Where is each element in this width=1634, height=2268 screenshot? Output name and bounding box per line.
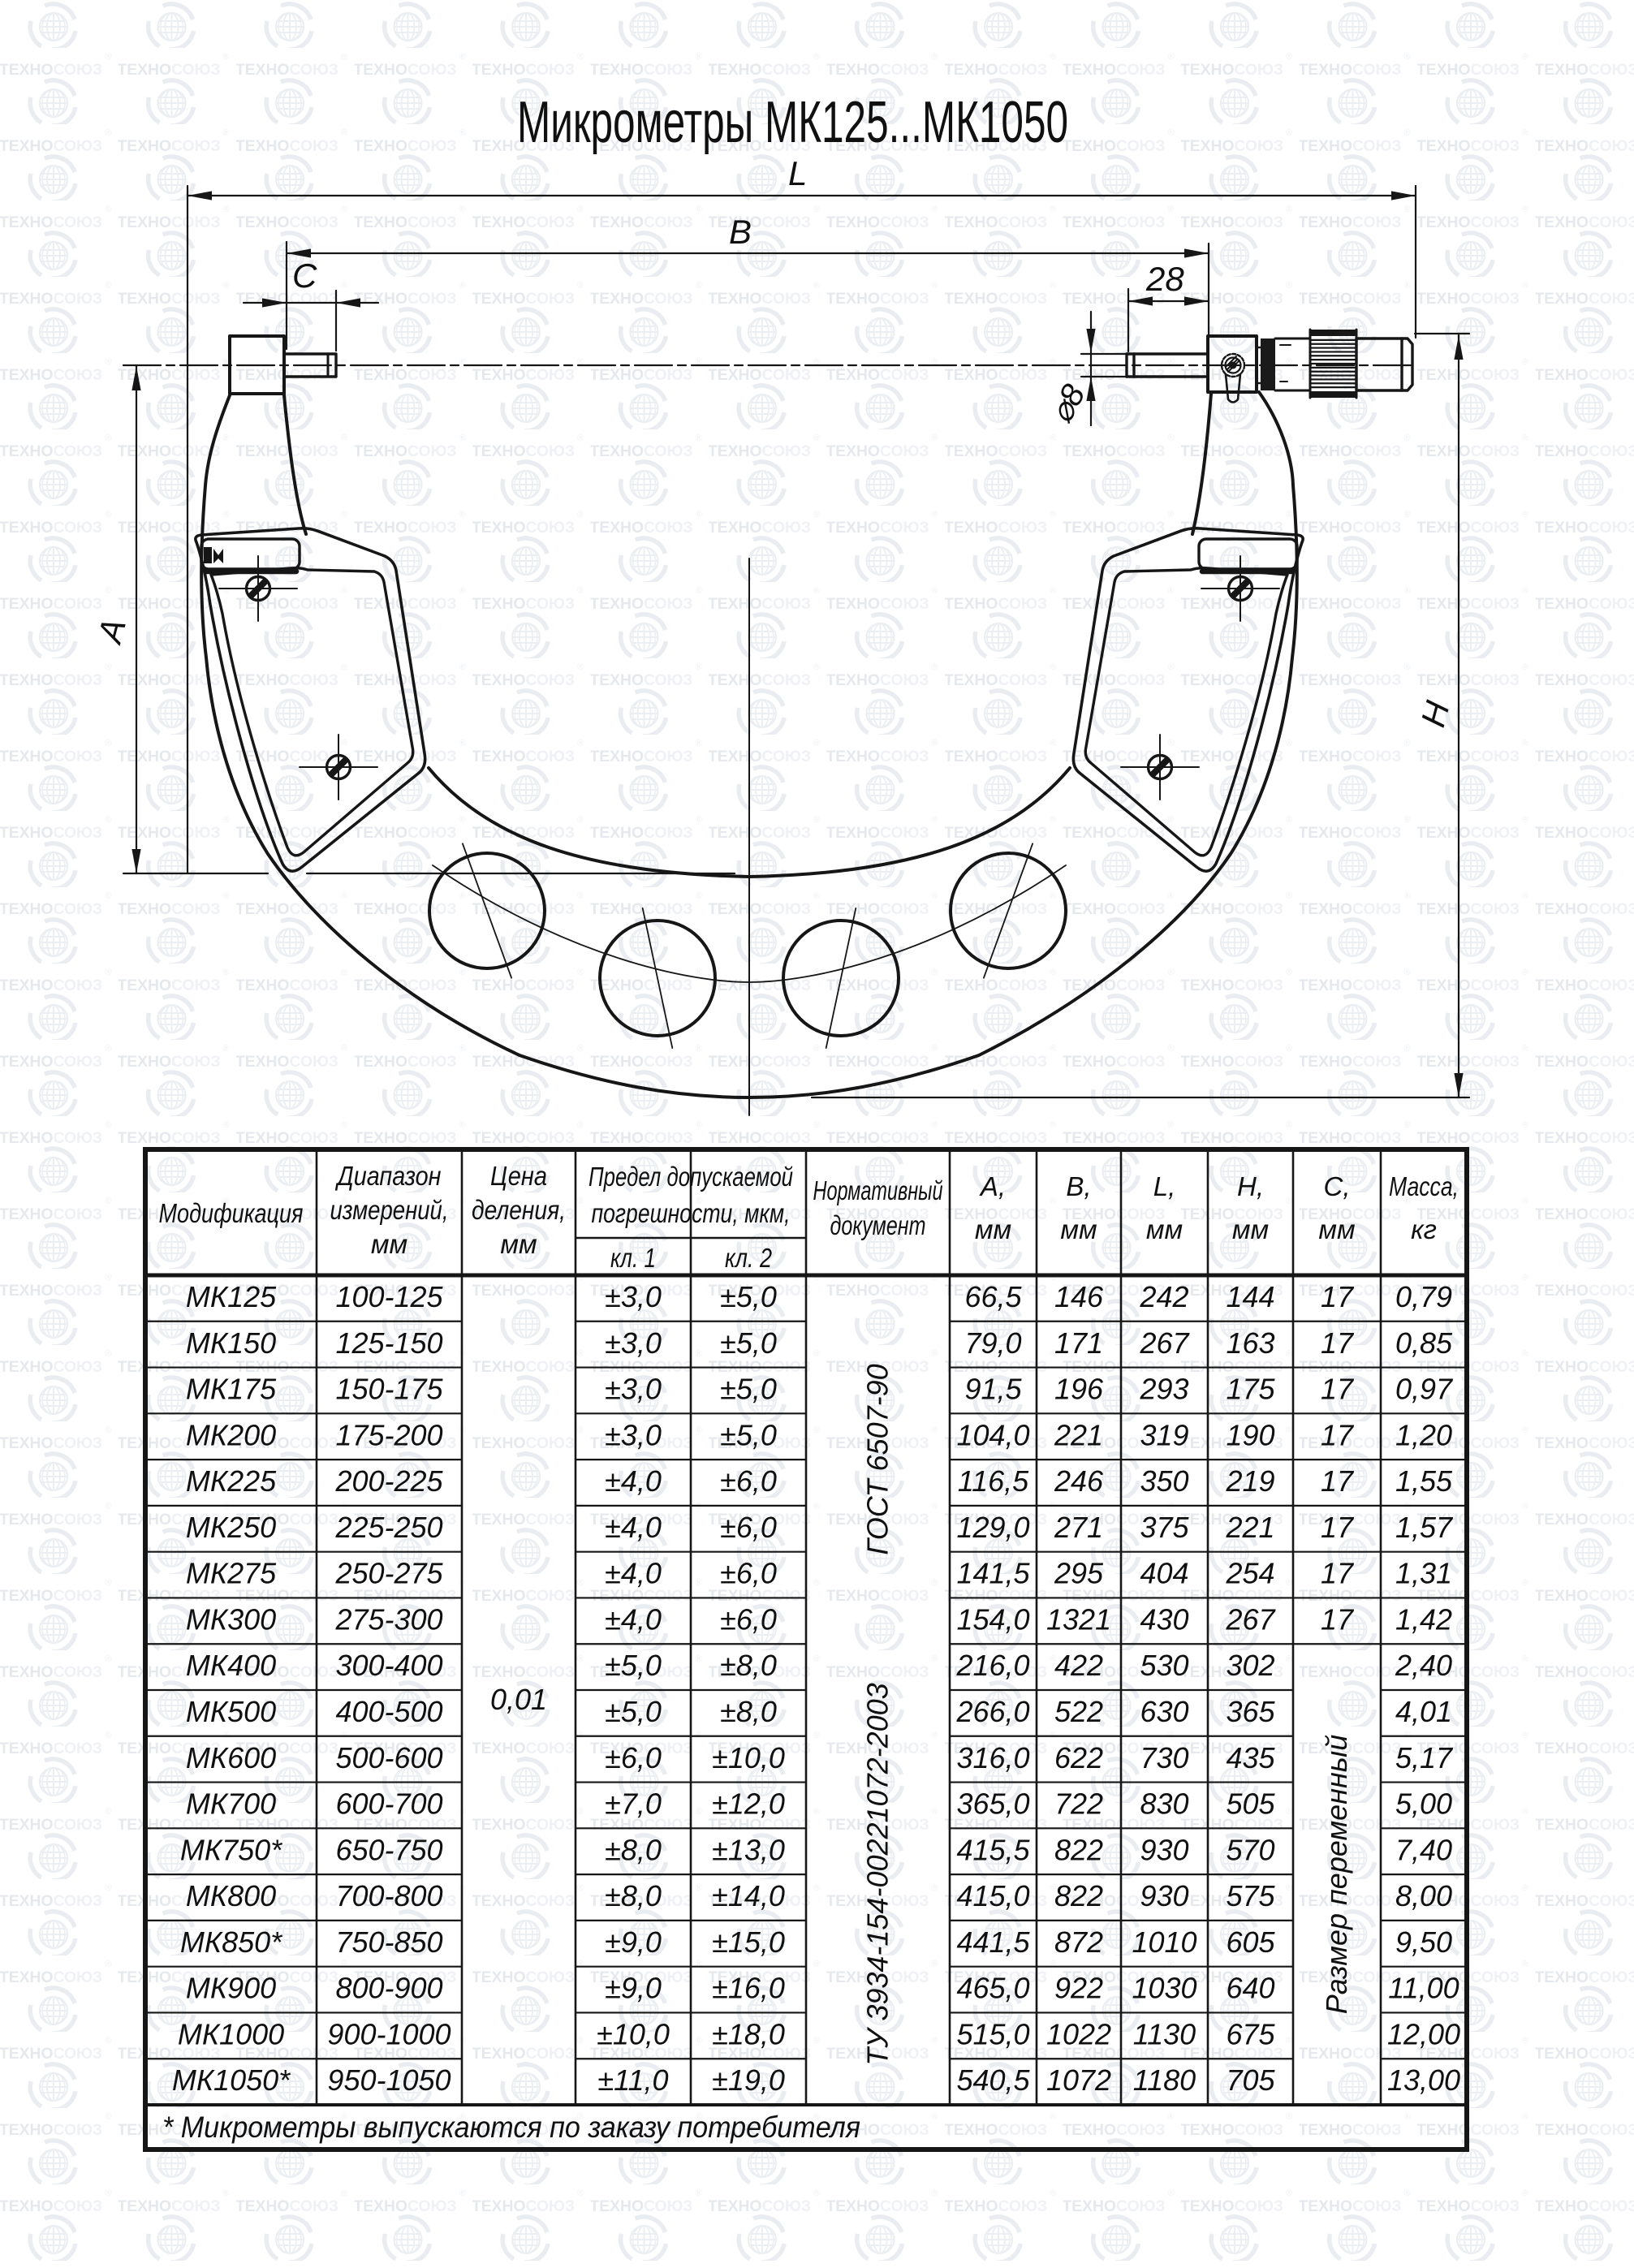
svg-text:830: 830 — [1140, 1787, 1188, 1821]
svg-text:±5,0: ±5,0 — [605, 1695, 662, 1728]
svg-text:±6,0: ±6,0 — [605, 1741, 662, 1774]
svg-text:5,00: 5,00 — [1395, 1787, 1452, 1821]
svg-text:622: 622 — [1054, 1741, 1103, 1774]
svg-text:В,: В, — [1066, 1171, 1091, 1201]
svg-text:505: 505 — [1226, 1787, 1275, 1821]
svg-text:±19,0: ±19,0 — [712, 2063, 785, 2097]
svg-text:МК150: МК150 — [186, 1326, 276, 1360]
svg-text:±8,0: ±8,0 — [605, 1879, 662, 1912]
svg-text:730: 730 — [1140, 1741, 1188, 1774]
svg-text:1321: 1321 — [1046, 1602, 1111, 1636]
svg-text:Предел допускаемой: Предел допускаемой — [588, 1162, 793, 1192]
svg-text:±8,0: ±8,0 — [605, 1833, 662, 1866]
svg-text:125-150: 125-150 — [335, 1326, 442, 1360]
svg-text:1130: 1130 — [1133, 2017, 1196, 2050]
svg-text:Н,: Н, — [1237, 1171, 1264, 1201]
svg-text:МК225: МК225 — [186, 1464, 277, 1498]
svg-text:0,79: 0,79 — [1395, 1280, 1452, 1313]
svg-text:мм: мм — [1318, 1214, 1355, 1244]
svg-text:28: 28 — [1145, 260, 1184, 298]
svg-text:365: 365 — [1226, 1695, 1275, 1728]
svg-text:422: 422 — [1054, 1649, 1103, 1682]
svg-text:7,40: 7,40 — [1395, 1833, 1452, 1866]
svg-text:МК900: МК900 — [186, 1972, 276, 2005]
svg-text:9,50: 9,50 — [1395, 1925, 1452, 1959]
svg-text:175: 175 — [1226, 1373, 1275, 1406]
svg-text:1022: 1022 — [1046, 2017, 1111, 2050]
svg-text:Диапазон: Диапазон — [334, 1161, 441, 1191]
svg-text:мм: мм — [500, 1229, 537, 1259]
svg-text:±15,0: ±15,0 — [712, 1925, 785, 1959]
svg-text:±12,0: ±12,0 — [712, 1787, 785, 1821]
svg-text:1,20: 1,20 — [1395, 1418, 1452, 1451]
svg-text:0,01: 0,01 — [490, 1683, 547, 1716]
svg-text:МК750*: МК750* — [180, 1833, 282, 1866]
svg-text:365,0: 365,0 — [956, 1787, 1029, 1821]
svg-text:±5,0: ±5,0 — [720, 1373, 777, 1406]
svg-text:267: 267 — [1225, 1602, 1276, 1636]
svg-text:±6,0: ±6,0 — [720, 1511, 777, 1544]
svg-text:141,5: 141,5 — [956, 1557, 1030, 1590]
svg-text:±11,0: ±11,0 — [597, 2063, 668, 2097]
svg-text:540,5: 540,5 — [956, 2063, 1030, 2097]
svg-text:79,0: 79,0 — [964, 1326, 1021, 1360]
svg-text:0,85: 0,85 — [1395, 1326, 1453, 1360]
svg-text:МК250: МК250 — [186, 1511, 276, 1544]
svg-text:мм: мм — [1146, 1214, 1183, 1244]
svg-text:±6,0: ±6,0 — [720, 1602, 777, 1636]
svg-text:1,31: 1,31 — [1395, 1557, 1452, 1590]
svg-text:мм: мм — [1060, 1214, 1097, 1244]
svg-text:±4,0: ±4,0 — [605, 1557, 662, 1590]
svg-text:242: 242 — [1139, 1280, 1188, 1313]
svg-text:Масса,: Масса, — [1389, 1171, 1459, 1201]
svg-text:575: 575 — [1226, 1879, 1275, 1912]
svg-text:±8,0: ±8,0 — [720, 1695, 777, 1728]
svg-text:404: 404 — [1140, 1557, 1188, 1590]
svg-text:МК1050*: МК1050* — [172, 2063, 291, 2097]
svg-text:219: 219 — [1225, 1464, 1274, 1498]
svg-text:Микрометры МК125...МК1050: Микрометры МК125...МК1050 — [517, 90, 1068, 155]
svg-text:МК125: МК125 — [186, 1280, 277, 1313]
svg-text:±14,0: ±14,0 — [712, 1879, 785, 1912]
svg-text:МК275: МК275 — [186, 1557, 277, 1590]
svg-text:175-200: 175-200 — [335, 1418, 442, 1451]
svg-text:350: 350 — [1140, 1464, 1188, 1498]
svg-text:415,5: 415,5 — [956, 1833, 1030, 1866]
svg-text:±3,0: ±3,0 — [605, 1326, 662, 1360]
svg-text:441,5: 441,5 — [956, 1925, 1030, 1959]
svg-text:650-750: 650-750 — [335, 1833, 442, 1866]
svg-text:Нормативный: Нормативный — [813, 1175, 943, 1205]
svg-text:МК300: МК300 — [186, 1602, 276, 1636]
svg-text:±3,0: ±3,0 — [605, 1418, 662, 1451]
svg-text:±13,0: ±13,0 — [712, 1833, 785, 1866]
svg-text:МК1000: МК1000 — [178, 2017, 284, 2050]
svg-text:1072: 1072 — [1046, 2063, 1111, 2097]
svg-text:700-800: 700-800 — [335, 1879, 442, 1912]
svg-text:±5,0: ±5,0 — [605, 1649, 662, 1682]
svg-text:±5,0: ±5,0 — [720, 1280, 777, 1313]
svg-text:275-300: 275-300 — [334, 1602, 442, 1636]
svg-text:196: 196 — [1054, 1373, 1104, 1406]
svg-text:погрешности, мкм,: погрешности, мкм, — [592, 1198, 791, 1228]
svg-text:C: C — [292, 257, 317, 295]
svg-text:300-400: 300-400 — [335, 1649, 442, 1682]
svg-text:271: 271 — [1054, 1511, 1103, 1544]
svg-text:17: 17 — [1321, 1602, 1355, 1636]
svg-text:5,17: 5,17 — [1395, 1741, 1454, 1774]
svg-text:* Микрометры выпускаются по за: * Микрометры выпускаются по заказу потре… — [162, 2111, 860, 2144]
svg-text:11,00: 11,00 — [1388, 1972, 1459, 2005]
svg-text:435: 435 — [1226, 1741, 1275, 1774]
svg-text:±10,0: ±10,0 — [597, 2017, 670, 2050]
svg-text:630: 630 — [1140, 1695, 1188, 1728]
svg-text:930: 930 — [1140, 1879, 1188, 1912]
svg-text:Цена: Цена — [490, 1161, 547, 1191]
svg-text:8,00: 8,00 — [1395, 1879, 1452, 1912]
svg-text:измерений,: измерений, — [330, 1195, 449, 1225]
svg-text:221: 221 — [1054, 1418, 1103, 1451]
svg-text:293: 293 — [1139, 1373, 1188, 1406]
svg-text:L,: L, — [1153, 1171, 1176, 1201]
svg-text:570: 570 — [1226, 1833, 1274, 1866]
svg-text:L: L — [788, 154, 807, 192]
svg-text:±4,0: ±4,0 — [605, 1602, 662, 1636]
svg-text:822: 822 — [1054, 1879, 1103, 1912]
svg-text:Размер переменный: Размер переменный — [1320, 1735, 1353, 2015]
svg-text:Модификация: Модификация — [159, 1198, 304, 1228]
svg-text:190: 190 — [1226, 1418, 1274, 1451]
svg-text:930: 930 — [1140, 1833, 1188, 1866]
svg-text:415,0: 415,0 — [956, 1879, 1029, 1912]
svg-text:530: 530 — [1140, 1649, 1188, 1682]
svg-text:А,: А, — [979, 1171, 1006, 1201]
svg-text:600-700: 600-700 — [335, 1787, 442, 1821]
svg-text:266,0: 266,0 — [955, 1695, 1029, 1728]
svg-text:66,5: 66,5 — [964, 1280, 1022, 1313]
svg-text:1010: 1010 — [1132, 1925, 1196, 1959]
svg-text:605: 605 — [1226, 1925, 1275, 1959]
svg-text:154,0: 154,0 — [956, 1602, 1029, 1636]
svg-text:1030: 1030 — [1132, 1972, 1196, 2005]
svg-text:171: 171 — [1054, 1326, 1103, 1360]
svg-text:91,5: 91,5 — [964, 1373, 1022, 1406]
svg-text:515,0: 515,0 — [956, 2017, 1029, 2050]
svg-text:267: 267 — [1139, 1326, 1190, 1360]
svg-text:13,00: 13,00 — [1387, 2063, 1460, 2097]
svg-text:±9,0: ±9,0 — [605, 1972, 662, 2005]
svg-text:675: 675 — [1226, 2017, 1275, 2050]
svg-text:±6,0: ±6,0 — [720, 1557, 777, 1590]
svg-text:872: 872 — [1054, 1925, 1103, 1959]
svg-text:±18,0: ±18,0 — [712, 2017, 785, 2050]
svg-text:375: 375 — [1140, 1511, 1189, 1544]
svg-text:±9,0: ±9,0 — [605, 1925, 662, 1959]
svg-text:104,0: 104,0 — [956, 1418, 1029, 1451]
svg-text:12,00: 12,00 — [1387, 2017, 1460, 2050]
svg-text:МК600: МК600 — [186, 1741, 276, 1774]
svg-text:465,0: 465,0 — [956, 1972, 1029, 2005]
svg-text:319: 319 — [1140, 1418, 1188, 1451]
svg-text:822: 822 — [1054, 1833, 1103, 1866]
svg-text:МК850*: МК850* — [180, 1925, 282, 1959]
svg-text:±3,0: ±3,0 — [605, 1280, 662, 1313]
svg-text:кг: кг — [1411, 1214, 1437, 1244]
svg-text:±6,0: ±6,0 — [720, 1464, 777, 1498]
svg-text:17: 17 — [1321, 1557, 1355, 1590]
svg-text:150-175: 150-175 — [335, 1373, 443, 1406]
svg-text:мм: мм — [1232, 1214, 1269, 1244]
svg-text:17: 17 — [1321, 1326, 1355, 1360]
svg-text:0,97: 0,97 — [1395, 1373, 1454, 1406]
svg-text:17: 17 — [1321, 1511, 1355, 1544]
svg-text:2,40: 2,40 — [1395, 1649, 1452, 1682]
svg-text:МК400: МК400 — [186, 1649, 276, 1682]
svg-text:мм: мм — [371, 1229, 407, 1259]
svg-text:1,57: 1,57 — [1395, 1511, 1454, 1544]
svg-text:ГОСТ 6507-90: ГОСТ 6507-90 — [861, 1364, 895, 1554]
svg-text:ТУ 3934-154-00221072-2003: ТУ 3934-154-00221072-2003 — [861, 1683, 895, 2065]
svg-text:950-1050: 950-1050 — [327, 2063, 451, 2097]
svg-text:±3,0: ±3,0 — [605, 1373, 662, 1406]
svg-text:430: 430 — [1140, 1602, 1188, 1636]
svg-text:17: 17 — [1321, 1418, 1355, 1451]
svg-text:С,: С, — [1324, 1171, 1351, 1201]
svg-text:146: 146 — [1054, 1280, 1104, 1313]
svg-text:900-1000: 900-1000 — [327, 2017, 451, 2050]
svg-text:225-250: 225-250 — [334, 1511, 442, 1544]
svg-text:116,5: 116,5 — [958, 1464, 1029, 1498]
svg-text:250-275: 250-275 — [334, 1557, 443, 1590]
svg-text:246: 246 — [1054, 1464, 1104, 1498]
svg-text:200-225: 200-225 — [334, 1464, 443, 1498]
svg-text:750-850: 750-850 — [335, 1925, 442, 1959]
svg-text:221: 221 — [1225, 1511, 1274, 1544]
svg-text:163: 163 — [1226, 1326, 1274, 1360]
svg-text:254: 254 — [1225, 1557, 1274, 1590]
svg-text:129,0: 129,0 — [956, 1511, 1029, 1544]
svg-text:4,01: 4,01 — [1395, 1695, 1452, 1728]
svg-text:МК200: МК200 — [186, 1418, 276, 1451]
svg-text:500-600: 500-600 — [335, 1741, 442, 1774]
svg-text:МК175: МК175 — [186, 1373, 277, 1406]
svg-text:400-500: 400-500 — [335, 1695, 442, 1728]
svg-text:кл. 1: кл. 1 — [610, 1243, 656, 1273]
svg-text:17: 17 — [1321, 1280, 1355, 1313]
svg-text:±4,0: ±4,0 — [605, 1464, 662, 1498]
svg-text:722: 722 — [1054, 1787, 1103, 1821]
svg-text:1,42: 1,42 — [1395, 1602, 1452, 1636]
svg-text:100-125: 100-125 — [335, 1280, 443, 1313]
svg-text:1,55: 1,55 — [1395, 1464, 1453, 1498]
svg-text:±5,0: ±5,0 — [720, 1326, 777, 1360]
svg-text:295: 295 — [1054, 1557, 1104, 1590]
svg-text:±4,0: ±4,0 — [605, 1511, 662, 1544]
svg-text:800-900: 800-900 — [335, 1972, 442, 2005]
svg-text:640: 640 — [1226, 1972, 1274, 2005]
svg-text:±7,0: ±7,0 — [605, 1787, 662, 1821]
svg-text:±10,0: ±10,0 — [712, 1741, 785, 1774]
svg-text:±5,0: ±5,0 — [720, 1418, 777, 1451]
svg-text:302: 302 — [1226, 1649, 1274, 1682]
svg-text:705: 705 — [1226, 2063, 1275, 2097]
svg-text:МК500: МК500 — [186, 1695, 276, 1728]
svg-text:522: 522 — [1054, 1695, 1103, 1728]
svg-text:B: B — [729, 213, 752, 251]
svg-text:316,0: 316,0 — [956, 1741, 1029, 1774]
svg-text:216,0: 216,0 — [955, 1649, 1029, 1682]
svg-text:922: 922 — [1054, 1972, 1103, 2005]
svg-text:МК700: МК700 — [186, 1787, 276, 1821]
svg-text:МК800: МК800 — [186, 1879, 276, 1912]
svg-text:кл. 2: кл. 2 — [725, 1243, 772, 1273]
svg-text:17: 17 — [1321, 1373, 1355, 1406]
svg-text:144: 144 — [1226, 1280, 1274, 1313]
svg-text:деления,: деления, — [472, 1195, 566, 1225]
svg-text:1180: 1180 — [1133, 2063, 1196, 2097]
svg-text:17: 17 — [1321, 1464, 1355, 1498]
svg-text:±8,0: ±8,0 — [720, 1649, 777, 1682]
svg-text:документ: документ — [830, 1210, 926, 1240]
svg-text:±16,0: ±16,0 — [712, 1972, 785, 2005]
svg-text:мм: мм — [975, 1214, 1011, 1244]
